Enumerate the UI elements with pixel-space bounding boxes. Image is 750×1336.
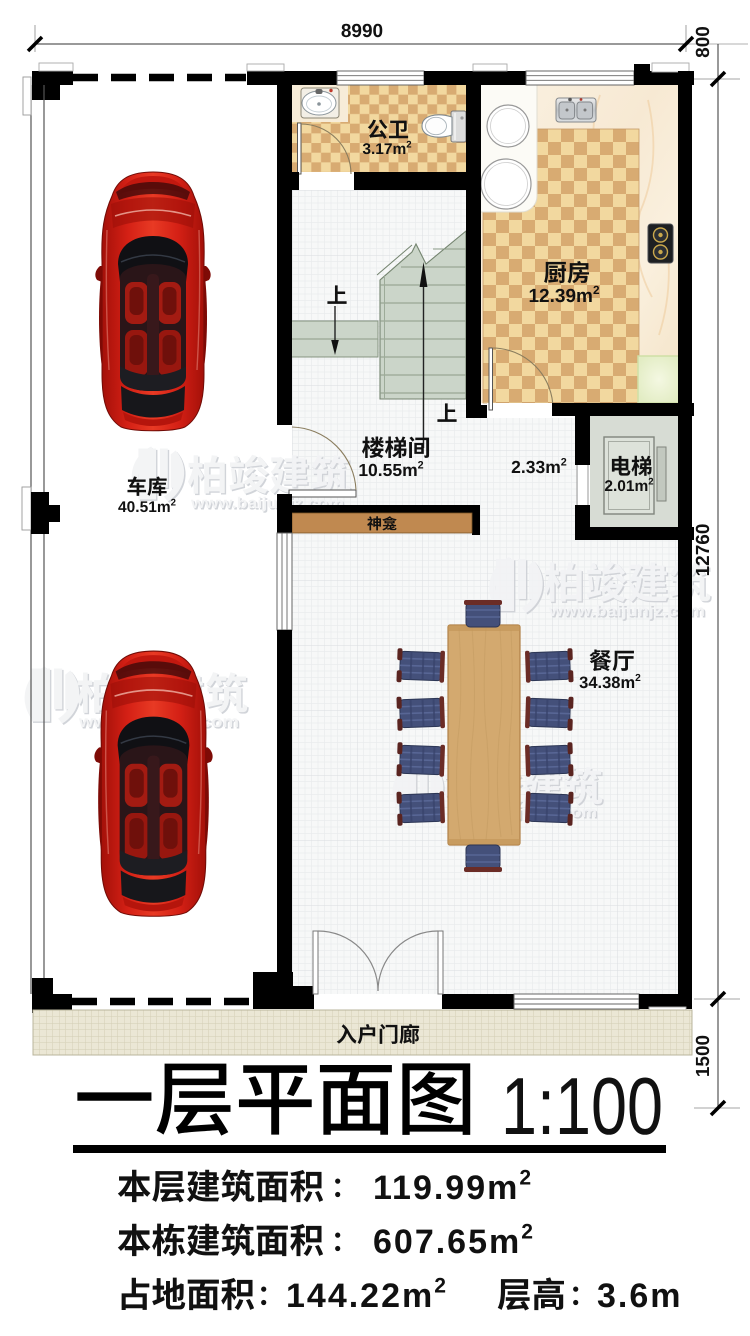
svg-text:34.38m2: 34.38m2 — [579, 673, 641, 692]
svg-text:3.6m: 3.6m — [597, 1277, 683, 1315]
svg-text:40.51m2: 40.51m2 — [118, 498, 176, 517]
svg-text:3.17m2: 3.17m2 — [362, 140, 411, 159]
svg-text:144.22m2: 144.22m2 — [286, 1275, 448, 1315]
svg-text:8990: 8990 — [341, 21, 383, 42]
svg-text:607.65m2: 607.65m2 — [373, 1221, 535, 1261]
svg-text:12760: 12760 — [693, 524, 714, 577]
svg-text:800: 800 — [693, 26, 714, 58]
svg-text:10.55m2: 10.55m2 — [358, 460, 423, 480]
svg-text:119.99m2: 119.99m2 — [373, 1167, 533, 1207]
svg-text:1:100: 1:100 — [501, 1062, 663, 1152]
svg-text:1500: 1500 — [693, 1035, 714, 1077]
svg-text:2.33m2: 2.33m2 — [511, 457, 567, 477]
svg-text:2.01m2: 2.01m2 — [604, 477, 653, 496]
svg-text:12.39m2: 12.39m2 — [528, 283, 599, 307]
